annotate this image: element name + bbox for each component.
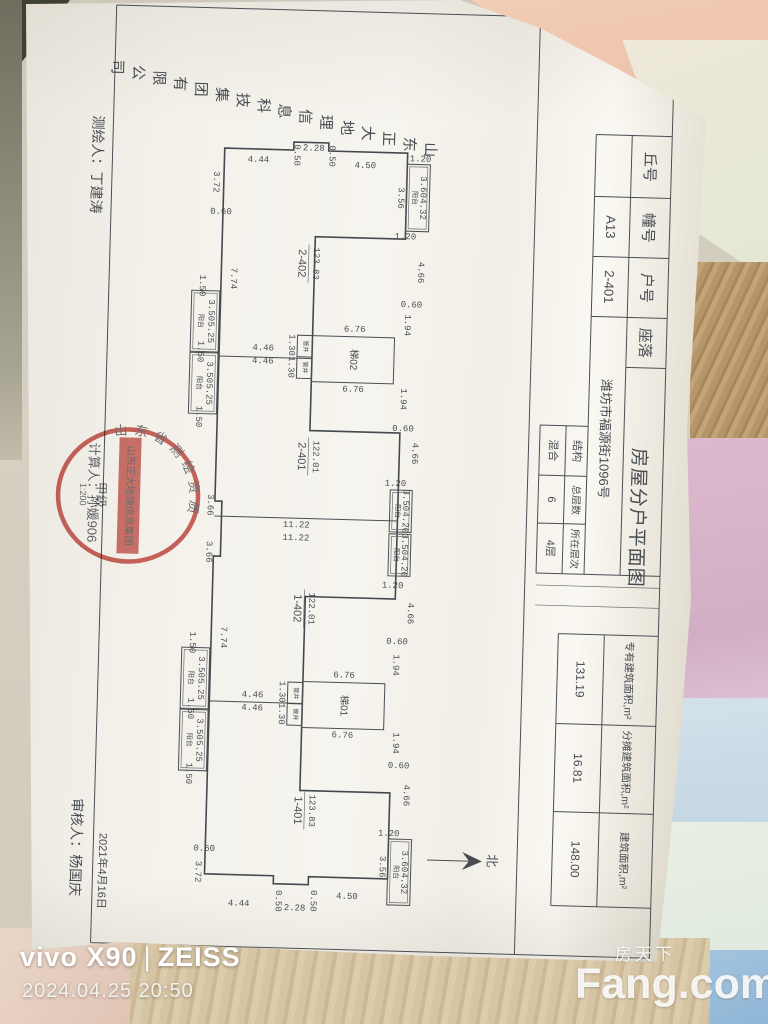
dimension-label: 4.66 <box>415 262 426 284</box>
field-value-floors: 6 <box>545 496 557 502</box>
balcony-dim: 3.50 <box>400 489 411 511</box>
dimension-label: 1.50 <box>195 341 206 363</box>
shaft-label: 管井 <box>302 340 310 352</box>
dimension-label: 1.50 <box>193 406 204 428</box>
balcony-dim: 3.50 <box>399 533 410 555</box>
dimension-label: 0.60 <box>392 424 414 435</box>
balcony-label: 阳台 <box>196 314 205 328</box>
dimension-label: 0.60 <box>401 300 423 311</box>
dimension-label: 6.76 <box>331 730 353 741</box>
dimension-label: 0.60 <box>386 637 408 648</box>
dimension-label: 4.66 <box>405 602 416 624</box>
field-label-huhao: 户号 <box>637 273 655 303</box>
dimension-label: 1.50 <box>183 762 194 784</box>
dimension-label: 0.50 <box>272 890 283 912</box>
area-value-total: 148.00 <box>568 841 583 878</box>
floor-plan-document: 山东正大地理信息科技集团有限公司 测绘人：丁建涛 计算人：孙媛906 审核人：杨… <box>0 0 768 1024</box>
camera-lens: ZEISS <box>158 942 241 972</box>
dimension-label: 2.28 <box>284 903 306 914</box>
balcony-dim: 3.50 <box>206 299 217 321</box>
area-label-total: 建筑面积,m² <box>616 832 631 890</box>
unit-number: 1-401 <box>291 796 304 824</box>
dimension-label: 1.30 <box>276 703 287 725</box>
fabric-patch-blue <box>672 698 768 838</box>
area-table: 专有建筑面积,m² 分摊建筑面积,m² 建筑面积,m² 131.19 16.81… <box>551 634 659 909</box>
photo-frame: 山东正大地理信息科技集团有限公司 测绘人：丁建涛 计算人：孙媛906 审核人：杨… <box>0 0 768 1024</box>
dimension-label: 0.50 <box>291 144 302 166</box>
balcony-area: 5.25 <box>205 321 216 343</box>
company-name-char: 公 <box>129 65 146 80</box>
field-label-floors: 总层数 <box>569 485 583 515</box>
balcony-dim: 3.50 <box>204 361 215 383</box>
review-date: 2021年4月16日 <box>94 833 110 909</box>
dimension-label: 0.60 <box>388 761 410 772</box>
dimension-label: 1.30 <box>286 334 297 356</box>
balcony-area: 4.20 <box>399 511 410 533</box>
dimension-label: 1.20 <box>382 581 404 592</box>
dimension-label: 1.94 <box>402 314 413 336</box>
dimension-label: 0.50 <box>326 145 337 167</box>
dimension-label: 1.50 <box>197 275 208 297</box>
seal-scale: 1:200 <box>78 483 89 506</box>
fang-watermark: 房天下 Fang.com <box>575 946 768 1006</box>
balcony-dim: 3.60 <box>418 176 429 198</box>
balcony-area: 4.20 <box>398 555 409 577</box>
dimension-label: 4.46 <box>242 690 264 701</box>
staircase-label: 梯02 <box>347 349 361 371</box>
balcony-area: 4.32 <box>417 198 428 220</box>
header-table: 丘号 幢号 户号 座落 A13 2-401 潍坊市福源街1096号 <box>536 133 672 576</box>
north-label: 北 <box>484 854 499 867</box>
company-name-char: 息 <box>275 103 292 118</box>
dimension-label: 3.66 <box>205 494 216 516</box>
company-name-char: 集 <box>213 87 230 102</box>
staircase-label: 梯01 <box>337 695 351 717</box>
company-name-char: 地 <box>338 120 355 135</box>
dimension-label: 6.76 <box>344 324 366 335</box>
dimension-label: 1.50 <box>185 697 196 719</box>
company-name-char: 技 <box>233 92 250 107</box>
company-name-char: 司 <box>108 59 125 74</box>
company-name-char: 团 <box>192 81 209 96</box>
area-label-exclusive: 专有建筑面积,m² <box>621 641 636 720</box>
seal-grade: 甲级 <box>93 482 109 508</box>
company-name: 山东正大地理信息科技集团有限公司 <box>106 59 440 157</box>
camera-brand: vivo X90 <box>20 942 138 972</box>
dimension-label: 1.94 <box>390 654 401 676</box>
field-value-level: 4层 <box>543 540 556 557</box>
surveyor-note: 测绘人：丁建涛 <box>88 115 107 213</box>
doc-title: 房屋分户平面图 <box>624 447 650 588</box>
area-label-shared: 分摊建筑面积,m² <box>618 730 633 809</box>
balcony-area: 5.25 <box>195 678 206 700</box>
unit-area: 123.83 <box>306 794 317 827</box>
background-left-edge <box>0 0 22 460</box>
company-name-char: 科 <box>254 98 271 113</box>
company-name-char: 有 <box>171 76 188 91</box>
field-label-zhuanghao: 幢号 <box>639 213 658 244</box>
dimension-label: 1.20 <box>410 154 432 165</box>
balcony-label: 阳台 <box>185 733 194 747</box>
dimension-label: 4.44 <box>228 898 250 909</box>
shaft-label: 管井 <box>291 708 299 720</box>
shaft-label: 管井 <box>292 687 300 699</box>
party-walls <box>209 356 402 706</box>
field-value-unit: 2-401 <box>601 270 617 304</box>
dimension-label: 1.30 <box>276 681 287 703</box>
area-value-shared: 16.81 <box>570 753 585 784</box>
field-label-qiuhao: 丘号 <box>640 152 658 182</box>
dimension-label: 11.22 <box>283 520 310 531</box>
company-name-char: 东 <box>400 137 417 152</box>
unit-number: 2-401 <box>295 442 308 470</box>
shaft-label: 管井 <box>301 361 309 373</box>
dimension-label: 1.94 <box>390 732 401 754</box>
balcony-dim: 3.60 <box>399 850 410 872</box>
dimension-label: 4.50 <box>354 161 376 172</box>
field-label-level: 所在层次 <box>568 529 582 569</box>
dimension-label: 3.56 <box>395 187 406 209</box>
dimension-label: 1.20 <box>378 829 400 840</box>
reviewer-note: 审核人：杨国庆 <box>67 798 86 896</box>
floor-plan: 梯02梯01 管井管井管井管井 阳台3.604.32阳台3.504.20阳台3.… <box>174 139 519 919</box>
dimension-label: 11.22 <box>282 533 309 544</box>
dimension-label: 4.46 <box>241 703 263 714</box>
dimension-label: 4.50 <box>336 891 358 902</box>
field-value-structure: 混合 <box>546 439 561 461</box>
doc-border <box>91 5 676 958</box>
balcony-area: 5.25 <box>203 383 214 405</box>
dimension-label: 3.72 <box>211 171 222 193</box>
company-name-char: 信 <box>296 109 313 124</box>
dimension-label: 0.60 <box>193 843 215 854</box>
dimension-label: 0.60 <box>210 207 232 218</box>
red-seal: 山东省测绘资质 山东正大地理信息集团 甲级 1:200 <box>56 420 204 564</box>
dimension-label: 4.66 <box>409 443 420 465</box>
dimension-label: 3.66 <box>203 541 214 563</box>
balcony-label: 阳台 <box>195 376 204 390</box>
field-label-zuoluo: 座落 <box>636 328 654 358</box>
dimension-label: 2.28 <box>303 143 325 154</box>
dimension-label: 4.46 <box>252 356 274 367</box>
dimension-label: 6.76 <box>333 670 355 681</box>
balcony-dim: 3.50 <box>196 656 207 678</box>
building-info-table: 结构 总层数 所在层次 混合 6 4层 <box>536 425 588 574</box>
dimension-label: 4.44 <box>248 155 270 166</box>
unit-area: 122.01 <box>310 440 321 473</box>
dimension-label: 0.50 <box>307 890 318 912</box>
dimension-label: 3.72 <box>192 861 203 883</box>
dimension-label: 1.94 <box>398 388 409 410</box>
area-value-exclusive: 131.19 <box>573 661 588 698</box>
dimension-label: 3.56 <box>376 856 387 878</box>
dimension-label: 4.46 <box>252 343 274 354</box>
dimension-label: 6.76 <box>342 384 364 395</box>
dimension-label: 1.50 <box>187 631 198 653</box>
unit-area: 123.83 <box>310 247 321 280</box>
balcony-area: 5.25 <box>193 740 204 762</box>
paper-sheet: 山东正大地理信息科技集团有限公司 测绘人：丁建涛 计算人：孙媛906 审核人：杨… <box>0 0 768 1024</box>
unit-number: 1-402 <box>291 594 304 622</box>
company-name-char: 限 <box>150 70 167 85</box>
field-value-building: A13 <box>603 215 619 239</box>
dimension-label: 7.74 <box>228 267 239 289</box>
balcony-dim: 3.50 <box>194 718 205 740</box>
fang-watermark-en: Fang.com <box>575 963 768 1006</box>
dimension-label: 1.20 <box>394 232 416 243</box>
company-name-char: 理 <box>317 114 334 129</box>
fabric-patch-mauve <box>682 438 768 713</box>
dimension-label: 1.30 <box>285 356 296 378</box>
balcony-area: 4.32 <box>398 872 409 894</box>
watermark-separator: | <box>138 942 158 972</box>
dimension-label: 1.20 <box>385 479 407 490</box>
dimension-label: 7.74 <box>218 626 229 648</box>
field-label-structure: 结构 <box>570 440 585 462</box>
north-arrow: 北 <box>427 851 500 871</box>
company-name-char: 大 <box>359 126 376 141</box>
balcony-label: 阳台 <box>187 671 196 685</box>
camera-watermark: vivo X90|ZEISS <box>20 942 241 973</box>
unit-number: 2-402 <box>295 249 308 277</box>
fabric-patch-tan <box>690 262 768 452</box>
photo-timestamp: 2024.04.25 20:50 <box>22 980 194 1003</box>
unit-area: 122.01 <box>305 592 316 625</box>
dimension-label: 4.66 <box>400 784 411 806</box>
company-name-char: 正 <box>379 131 396 146</box>
field-value-address: 潍坊市福源街1096号 <box>596 379 614 499</box>
